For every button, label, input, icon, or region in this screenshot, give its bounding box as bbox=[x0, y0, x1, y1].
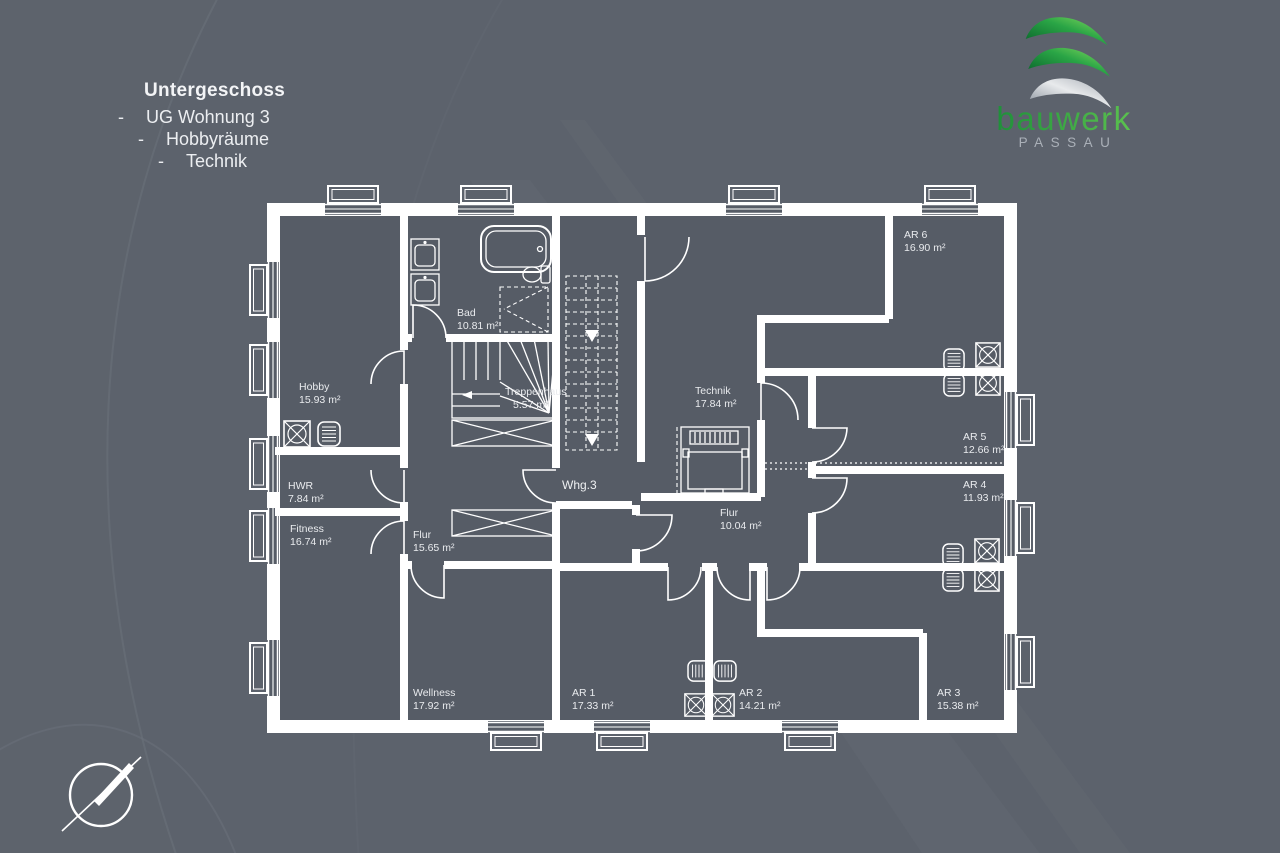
window bbox=[325, 186, 381, 215]
window bbox=[488, 721, 544, 750]
bullet-label: Hobbyräume bbox=[166, 128, 269, 150]
logo: bauwerk PASSAU bbox=[996, 16, 1131, 150]
vent-icon bbox=[712, 694, 734, 716]
logo-brand-text: bauwerk bbox=[996, 100, 1131, 137]
window bbox=[250, 508, 279, 564]
floor-plan: Hobby15.93 m² Bad10.81 m² Treppenhaus5.5… bbox=[250, 186, 1034, 750]
title-bullet-item: - Technik bbox=[154, 150, 285, 172]
window bbox=[726, 186, 782, 215]
window bbox=[250, 640, 279, 696]
vent-icon bbox=[976, 343, 1000, 367]
logo-swoosh-icon bbox=[1028, 46, 1112, 77]
bullet-dash: - bbox=[154, 150, 168, 172]
bullet-dash: - bbox=[114, 106, 128, 128]
window bbox=[1005, 634, 1034, 690]
window bbox=[782, 721, 838, 750]
window bbox=[1005, 500, 1034, 556]
page-title: Untergeschoss bbox=[144, 80, 285, 102]
window bbox=[250, 342, 279, 398]
bullet-dash: - bbox=[134, 128, 148, 150]
logo-city-text: PASSAU bbox=[1019, 135, 1118, 150]
window bbox=[922, 186, 978, 215]
room-label-wellness: Wellness17.92 m² bbox=[413, 687, 455, 712]
vent-icon bbox=[976, 371, 1000, 395]
title-bullet-item: - Hobbyräume bbox=[134, 128, 285, 150]
window bbox=[458, 186, 514, 215]
room-label-whg3: Whg.3 bbox=[562, 478, 597, 492]
compass-icon bbox=[62, 757, 141, 831]
window bbox=[250, 262, 279, 318]
vent-icon bbox=[975, 567, 999, 591]
title-bullet-item: - UG Wohnung 3 bbox=[114, 106, 285, 128]
title-block: Untergeschoss - UG Wohnung 3 - Hobbyräum… bbox=[112, 80, 285, 172]
bullet-label: Technik bbox=[186, 150, 247, 172]
vent-icon bbox=[685, 694, 707, 716]
bullet-label: UG Wohnung 3 bbox=[146, 106, 270, 128]
logo-swoosh-icon bbox=[1026, 16, 1109, 46]
window bbox=[250, 436, 279, 492]
floorplan-page: Hobby15.93 m² Bad10.81 m² Treppenhaus5.5… bbox=[0, 0, 1280, 853]
window bbox=[594, 721, 650, 750]
window bbox=[1005, 392, 1034, 448]
vent-icon bbox=[975, 539, 999, 563]
vent-icon bbox=[284, 421, 310, 447]
